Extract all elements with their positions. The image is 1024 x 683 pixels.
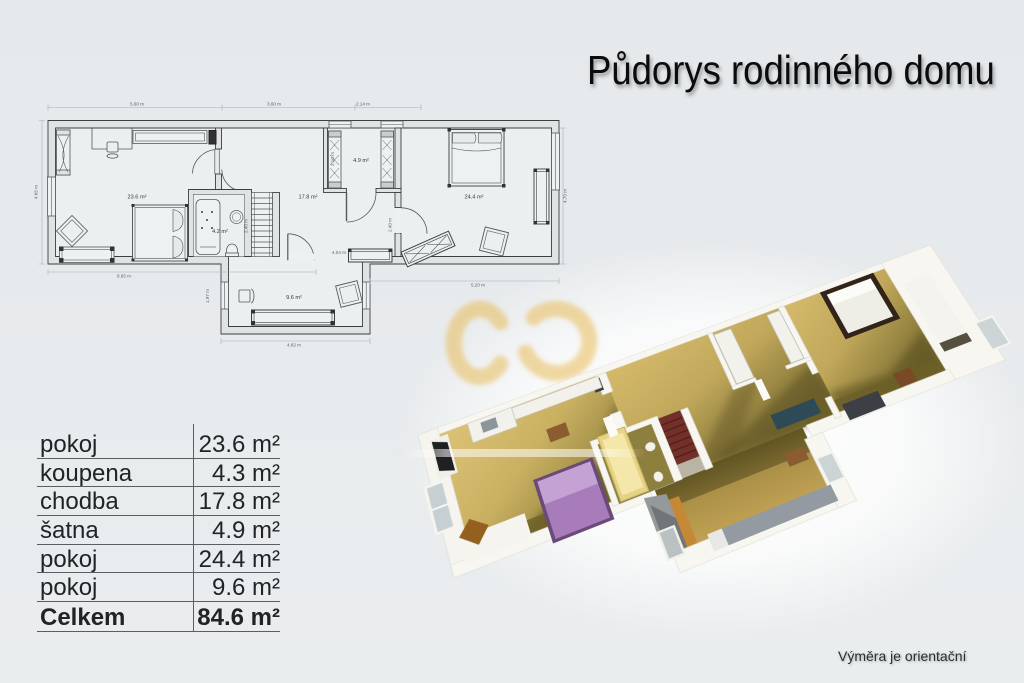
svg-text:8.65 m: 8.65 m [117,274,131,279]
svg-text:9.6 m²: 9.6 m² [286,295,302,301]
svg-text:1.97 m: 1.97 m [205,289,210,303]
svg-text:2.40 m: 2.40 m [388,218,393,232]
svg-text:17.8 m²: 17.8 m² [299,195,318,201]
svg-text:2.40 m: 2.40 m [244,219,249,233]
svg-text:4.2 m²: 4.2 m² [212,229,228,235]
svg-text:3.60 m: 3.60 m [267,102,281,107]
svg-text:24.4 m²: 24.4 m² [465,195,484,201]
svg-text:5.20 m: 5.20 m [471,283,485,288]
svg-text:4.65 m: 4.65 m [34,185,39,199]
svg-text:2.10 m: 2.10 m [330,152,335,166]
svg-text:5.60 m: 5.60 m [130,102,144,107]
svg-text:4.70 m: 4.70 m [563,189,568,203]
svg-text:4.9 m²: 4.9 m² [353,158,369,164]
svg-text:23.6 m²: 23.6 m² [128,195,147,201]
svg-text:4.04 m: 4.04 m [332,250,346,255]
svg-text:2.14 m: 2.14 m [356,102,370,107]
svg-text:4.82 m: 4.82 m [287,343,301,348]
